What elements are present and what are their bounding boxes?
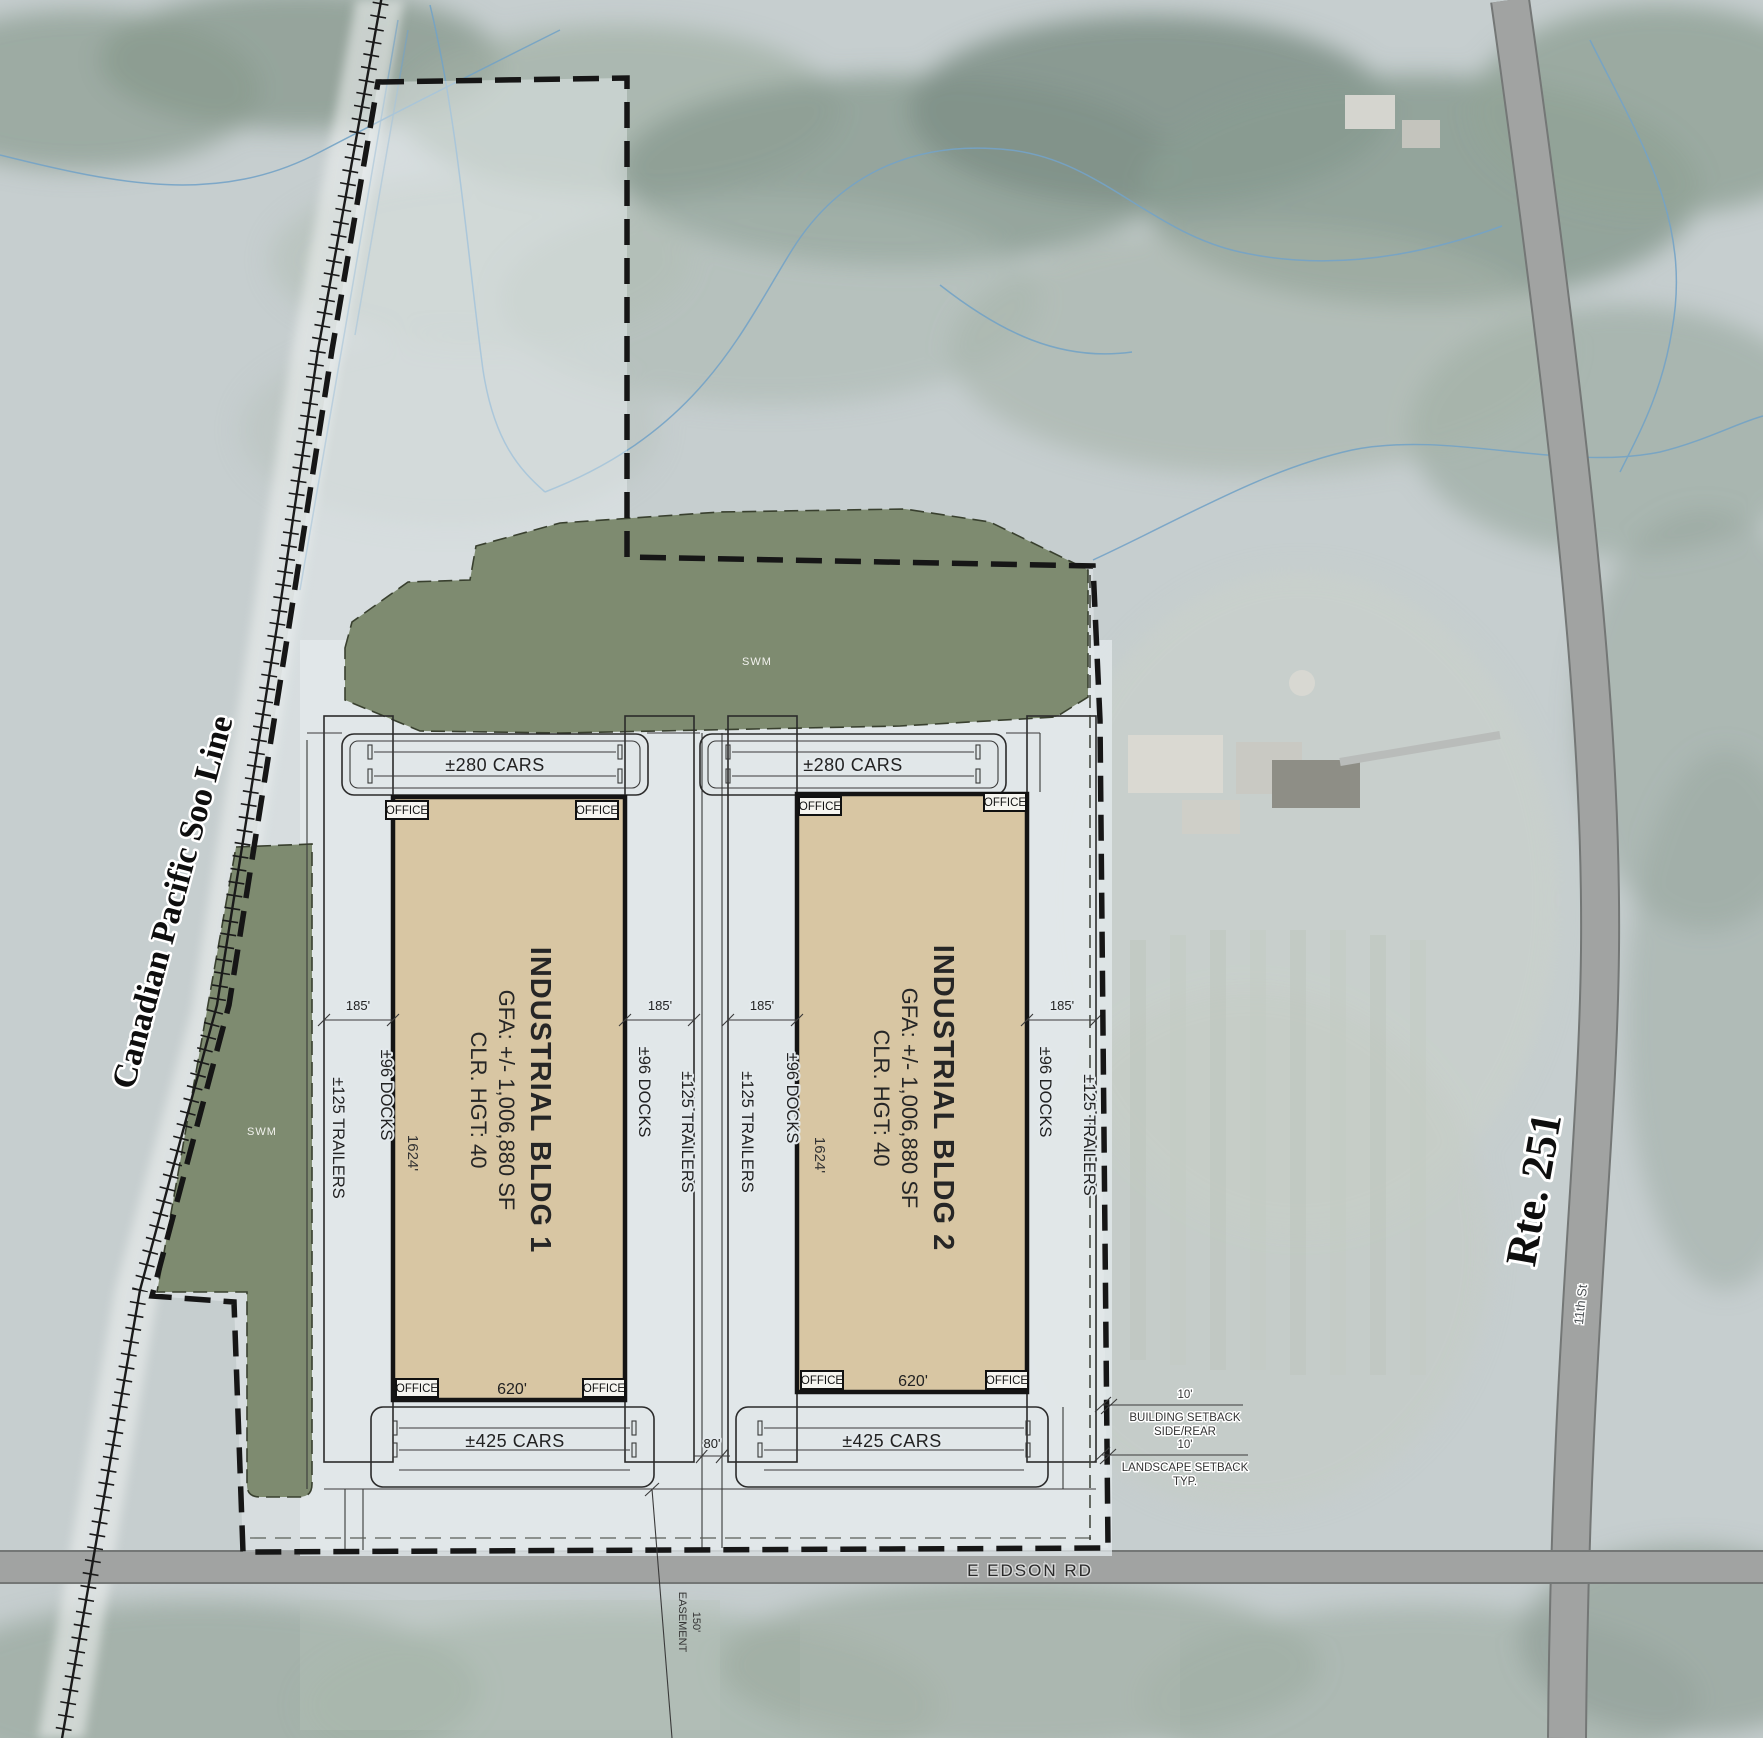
building-1: INDUSTRIAL BLDG 1 GFA: +/- 1,006,880 SF … (393, 797, 625, 1400)
building-2: INDUSTRIAL BLDG 2 GFA: +/- 1,006,880 SF … (797, 794, 1027, 1392)
building-2-gfa: GFA: +/- 1,006,880 SF (897, 988, 922, 1209)
office-box: OFFICE (986, 1371, 1028, 1389)
office-box: OFFICE (396, 1379, 438, 1397)
office-box: OFFICE (576, 801, 618, 819)
svg-text:150': 150' (690, 1612, 702, 1632)
svg-text:OFFICE: OFFICE (801, 1375, 843, 1387)
svg-text:OFFICE: OFFICE (386, 805, 428, 817)
svg-text:185': 185' (750, 998, 774, 1013)
office-box: OFFICE (386, 801, 428, 819)
trailers-label-b1e: ±125 TRAILERS (678, 1071, 696, 1193)
parking-count-top-b2: ±280 CARS (803, 755, 902, 775)
site-plan-canvas: SWM SWM ±280 CARS (0, 0, 1763, 1738)
trailers-label-b1w: ±125 TRAILERS (329, 1077, 347, 1199)
svg-text:LANDSCAPE SETBACK: LANDSCAPE SETBACK (1122, 1462, 1249, 1474)
svg-text:EASEMENT: EASEMENT (676, 1592, 688, 1653)
svg-text:OFFICE: OFFICE (583, 1383, 625, 1395)
office-box: OFFICE (801, 1371, 843, 1389)
parking-count-top-b1: ±280 CARS (445, 755, 544, 775)
docks-label-b1w: ±96 DOCKS (377, 1050, 395, 1141)
building-2-name: INDUSTRIAL BLDG 2 (927, 945, 959, 1251)
swm-label-west: SWM (247, 1126, 277, 1138)
site-plan-svg: SWM SWM ±280 CARS (0, 0, 1763, 1738)
svg-text:OFFICE: OFFICE (986, 1375, 1028, 1387)
office-box: OFFICE (984, 793, 1026, 811)
building-1-length-dim: 1624' (404, 1135, 421, 1171)
building-2-width-dim: 620' (898, 1373, 928, 1390)
svg-text:SIDE/REAR: SIDE/REAR (1154, 1426, 1216, 1438)
svg-text:OFFICE: OFFICE (984, 797, 1026, 809)
svg-text:OFFICE: OFFICE (799, 801, 841, 813)
svg-text:185': 185' (648, 998, 672, 1013)
svg-text:TYP.: TYP. (1173, 1476, 1197, 1488)
building-1-clear-height: CLR. HGT: 40 (466, 1032, 491, 1169)
svg-text:10': 10' (1178, 1389, 1193, 1401)
svg-text:BUILDING SETBACK: BUILDING SETBACK (1129, 1412, 1241, 1424)
office-box: OFFICE (799, 797, 841, 815)
svg-text:80': 80' (704, 1436, 721, 1451)
parking-count-bottom-b2: ±425 CARS (842, 1431, 941, 1451)
docks-label-b2e: ±96 DOCKS (1036, 1047, 1054, 1138)
docks-label-b2w: ±96 DOCKS (783, 1053, 801, 1144)
svg-text:185': 185' (346, 998, 370, 1013)
svg-text:OFFICE: OFFICE (396, 1383, 438, 1395)
building-1-width-dim: 620' (497, 1381, 527, 1398)
building-2-length-dim: 1624' (811, 1137, 828, 1173)
svg-text:10': 10' (1178, 1439, 1193, 1451)
svg-text:OFFICE: OFFICE (576, 805, 618, 817)
trailers-label-b2e: ±125 TRAILERS (1080, 1074, 1098, 1196)
trailers-label-b2w: ±125 TRAILERS (738, 1071, 756, 1193)
edson-road-label: E EDSON RD (967, 1561, 1093, 1580)
docks-label-b1e: ±96 DOCKS (635, 1047, 653, 1138)
building-1-gfa: GFA: +/- 1,006,880 SF (494, 990, 519, 1211)
building-2-clear-height: CLR. HGT: 40 (869, 1030, 894, 1167)
office-box: OFFICE (583, 1379, 625, 1397)
building-1-name: INDUSTRIAL BLDG 1 (524, 947, 556, 1253)
svg-text:185': 185' (1050, 998, 1074, 1013)
parking-count-bottom-b1: ±425 CARS (465, 1431, 564, 1451)
swm-label-north: SWM (742, 656, 772, 668)
